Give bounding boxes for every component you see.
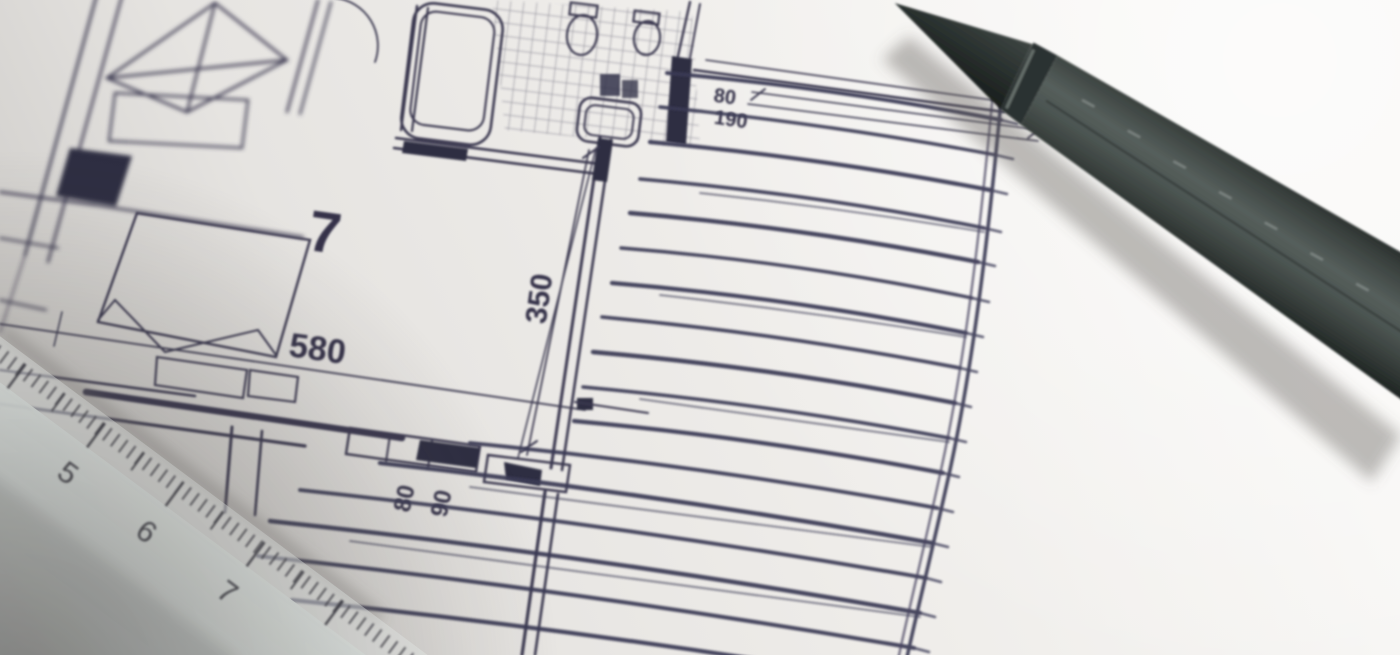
- corner-shadow: [0, 0, 1400, 655]
- photo-canvas: 7 580 350 80 90 80 190: [0, 0, 1400, 655]
- photo-floor-plan-scene: 7 580 350 80 90 80 190: [0, 0, 1400, 655]
